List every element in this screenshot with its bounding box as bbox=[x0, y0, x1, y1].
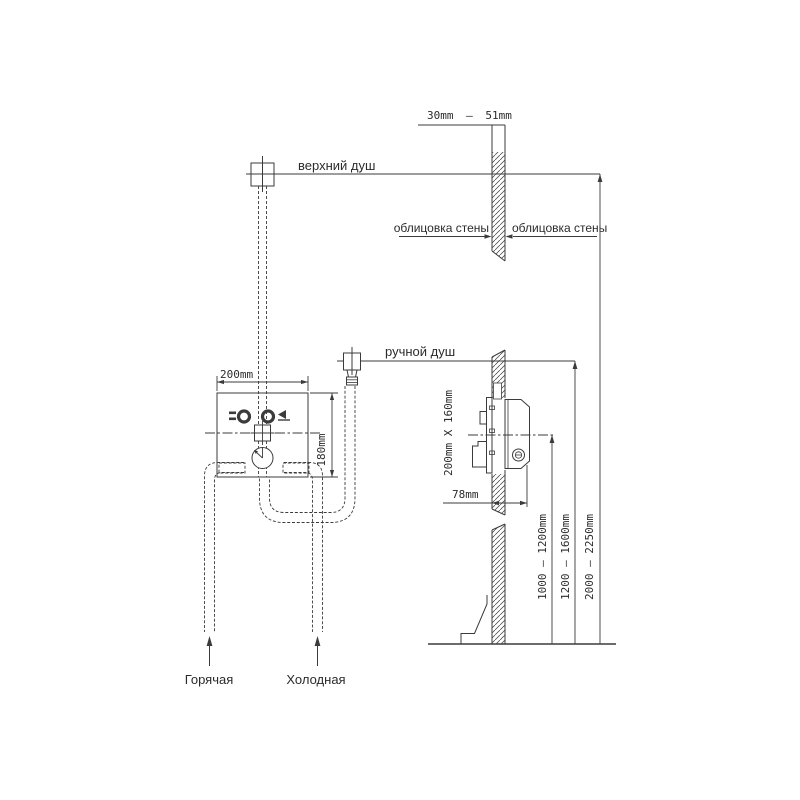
dimension-hand-shower-height bbox=[573, 361, 578, 644]
overhead-shower-label: верхний душ bbox=[298, 158, 375, 173]
cold-supply-arrow bbox=[315, 636, 321, 666]
center-fixing bbox=[251, 421, 275, 445]
dimension-overhead-height bbox=[598, 174, 603, 644]
diagram-svg: верхний душ 200mm 180mm bbox=[0, 0, 800, 800]
dimension-mixer-height bbox=[550, 435, 555, 644]
hand-shower-symbol bbox=[344, 347, 361, 385]
hot-supply-arrow bbox=[207, 636, 213, 666]
dimension-overhead-height-text: 2000 — 2250mm bbox=[583, 514, 596, 600]
hot-pipe bbox=[205, 463, 245, 633]
diverter-valve bbox=[252, 448, 273, 469]
hot-knob-icon bbox=[229, 412, 236, 421]
hot-supply-label: Горячая bbox=[185, 672, 234, 687]
cold-pipe bbox=[284, 463, 323, 633]
front-view: верхний душ 200mm 180mm bbox=[185, 156, 600, 687]
wall-cladding-right-label: облицовка стены bbox=[512, 221, 607, 235]
dimension-box-height-text: 180mm bbox=[315, 433, 328, 466]
rough-in-size-text: 200mm X 160mm bbox=[442, 390, 455, 476]
cold-knob bbox=[263, 411, 274, 422]
cold-supply-label: Холодная bbox=[286, 672, 345, 687]
cold-knob-icon bbox=[278, 410, 290, 420]
wall-cladding-left-label: облицовка стены bbox=[394, 221, 489, 235]
mixer-knobs bbox=[229, 410, 290, 422]
shower-installation-diagram: верхний душ 200mm 180mm bbox=[0, 0, 800, 800]
wall-body-gap bbox=[491, 398, 506, 470]
dimension-hand-shower-height-text: 1200 — 1600mm bbox=[559, 514, 572, 600]
dimension-box-width-text: 200mm bbox=[220, 368, 253, 381]
hot-knob bbox=[239, 411, 250, 422]
hand-shower-hose bbox=[260, 386, 356, 523]
dimension-mixer-height-text: 1000 — 1200mm bbox=[536, 514, 549, 600]
hand-shower-label: ручной душ bbox=[385, 344, 455, 359]
cladding-dim-text: 30mm — 51mm bbox=[427, 109, 512, 122]
dimension-depth-text: 78mm bbox=[452, 488, 479, 501]
shower-tray-profile bbox=[461, 595, 487, 644]
side-view: 30mm — 51mm облицовка с bbox=[337, 109, 616, 644]
